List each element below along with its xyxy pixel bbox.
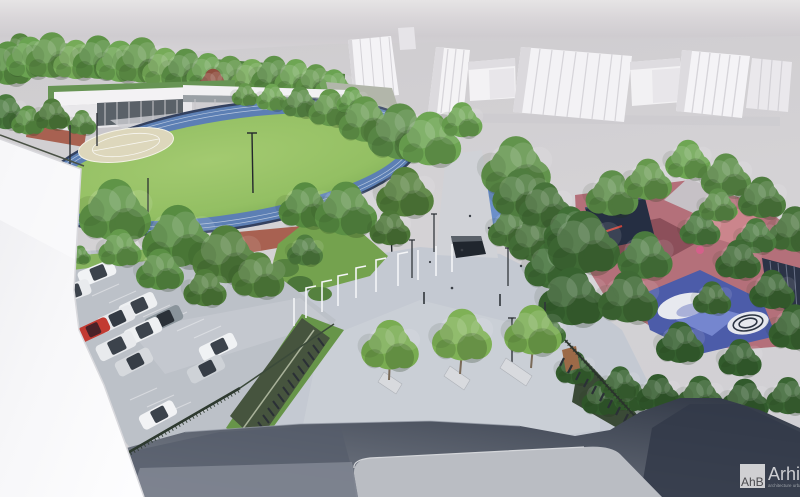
svg-text:Arhi: Arhi (768, 464, 800, 484)
svg-text:AhB: AhB (741, 475, 764, 489)
svg-text:architecture urbanism: architecture urbanism (768, 483, 800, 488)
